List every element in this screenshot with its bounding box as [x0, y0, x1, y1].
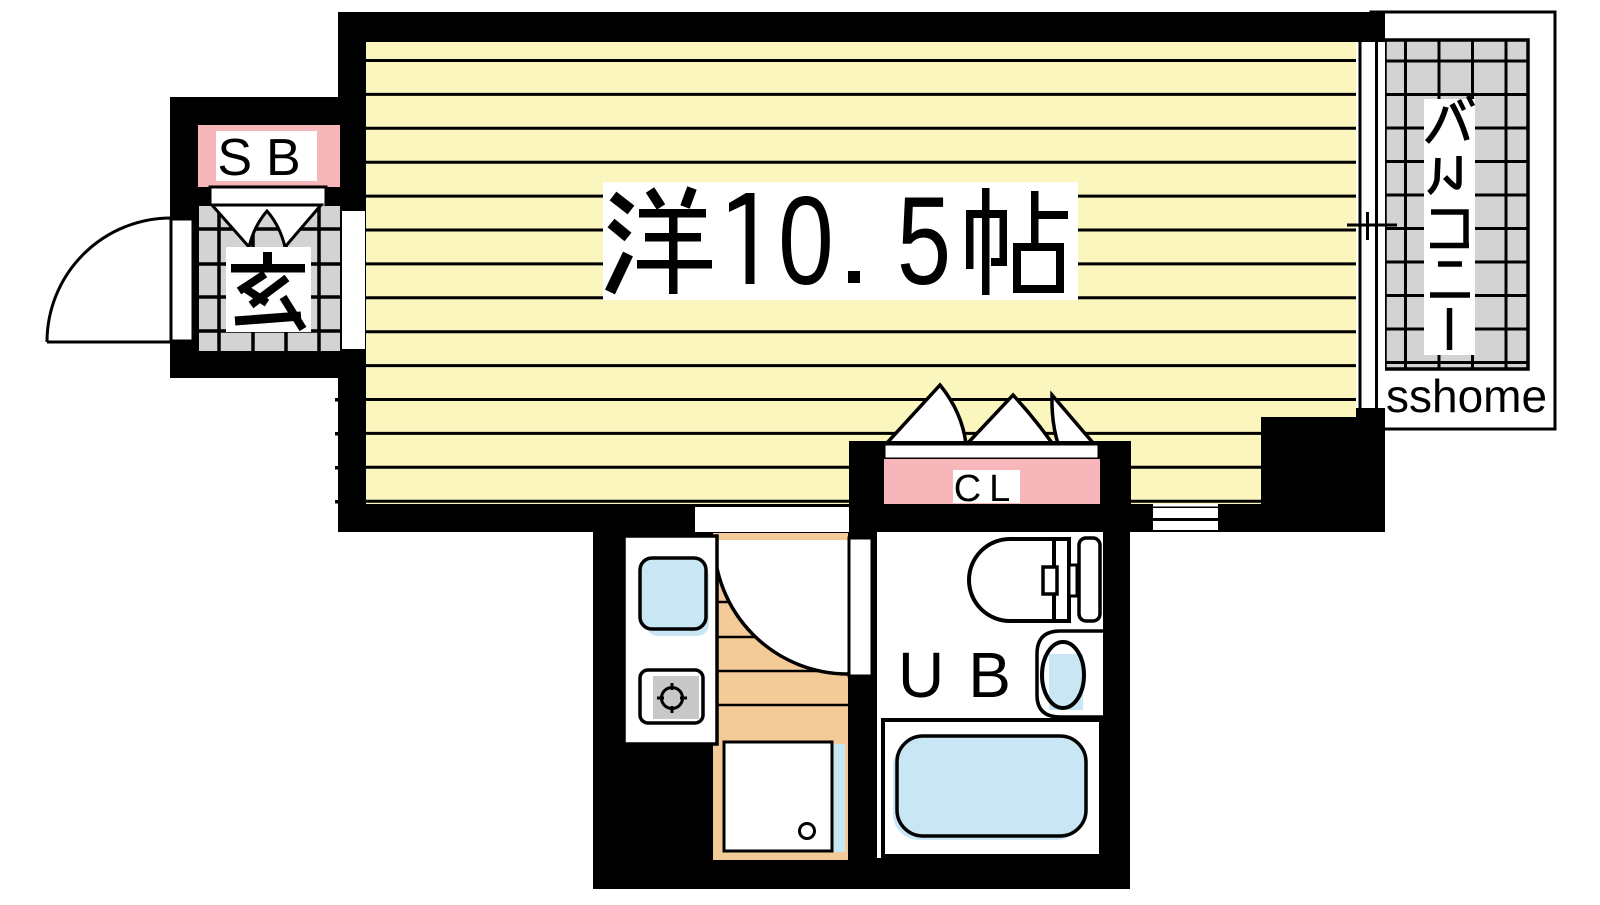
svg-text:UB: UB	[898, 639, 1035, 711]
svg-text:0: 0	[778, 171, 834, 310]
svg-text:SB: SB	[217, 129, 314, 187]
svg-text:CL: CL	[954, 468, 1019, 510]
svg-text:sshome: sshome	[1386, 370, 1547, 422]
svg-text:5: 5	[897, 171, 951, 310]
